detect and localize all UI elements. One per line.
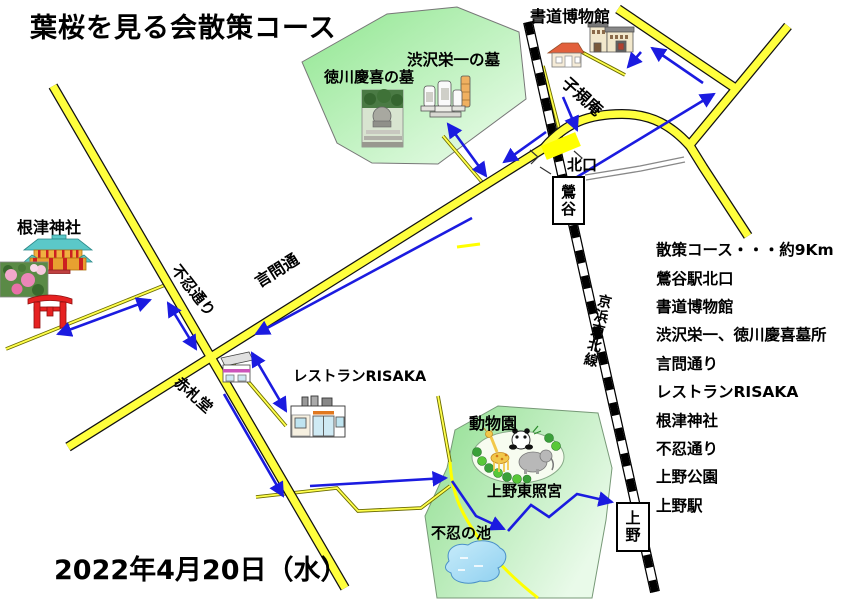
route-arrow-to-shikian bbox=[628, 52, 641, 67]
shikian-house-icon bbox=[548, 43, 584, 67]
map-title: 葉桜を見る会散策コース bbox=[30, 14, 337, 44]
label-nezu-shrine: 根津神社 bbox=[17, 219, 81, 237]
course-list-item: 渋沢栄一、徳川慶喜墓所 bbox=[656, 320, 834, 348]
zoo-area bbox=[472, 426, 564, 484]
map-date: 2022年4月20日（水） bbox=[54, 556, 348, 586]
course-list-item: レストランRISAKA bbox=[656, 377, 834, 405]
course-list-item: 書道博物館 bbox=[656, 292, 834, 320]
route-arrow-kototoi bbox=[256, 218, 472, 334]
ueno-station-box: 上野 bbox=[616, 502, 650, 552]
shinobazu-pond bbox=[445, 541, 505, 583]
label-shodo-museum: 書道博物館 bbox=[530, 8, 610, 26]
course-list-item: 上野公園 bbox=[656, 462, 834, 490]
torii-icon bbox=[28, 295, 72, 328]
uguisudani-station-box: 鶯谷 bbox=[552, 176, 585, 225]
course-list-item: 言問通り bbox=[656, 349, 834, 377]
label-north-exit: 北口 bbox=[567, 157, 597, 174]
course-list-item: 根津神社 bbox=[656, 405, 834, 433]
route-arrow-nezu bbox=[58, 300, 150, 334]
course-list-item: 散策コース・・・約9Km bbox=[656, 235, 834, 263]
course-list-item: 鶯谷駅北口 bbox=[656, 263, 834, 291]
route-arrow-east-to-park bbox=[310, 478, 446, 486]
label-restaurant-risaka: レストランRISAKA bbox=[293, 370, 426, 386]
label-tokugawa-grave: 徳川慶喜の墓 bbox=[324, 69, 414, 86]
course-list-item: 不忍通り bbox=[656, 434, 834, 462]
course-list-item: 上野駅 bbox=[656, 491, 834, 519]
azalea-photo bbox=[0, 262, 48, 297]
restaurant-risaka-icon bbox=[291, 396, 345, 437]
tokugawa-grave-photo bbox=[362, 89, 403, 147]
station-side-lines bbox=[585, 157, 685, 180]
label-shinobazu-pond: 不忍の池 bbox=[431, 525, 491, 542]
label-zoo: 動物園 bbox=[469, 415, 517, 433]
course-list: 散策コース・・・約9Km 鶯谷駅北口 書道博物館 渋沢栄一、徳川慶喜墓所 言問通… bbox=[656, 235, 834, 519]
akafudado-icon bbox=[221, 352, 253, 382]
road-stub bbox=[457, 244, 480, 247]
shodo-museum-icon bbox=[588, 22, 634, 52]
walking-course-map: 葉桜を見る会散策コース 2022年4月20日（水） 書道博物館 子規庵 北口 渋… bbox=[0, 0, 850, 600]
label-shibusawa-grave: 渋沢栄一の墓 bbox=[407, 52, 500, 69]
route-arrow-risaka bbox=[252, 353, 286, 411]
label-ueno-toshogu: 上野東照宮 bbox=[487, 483, 562, 500]
